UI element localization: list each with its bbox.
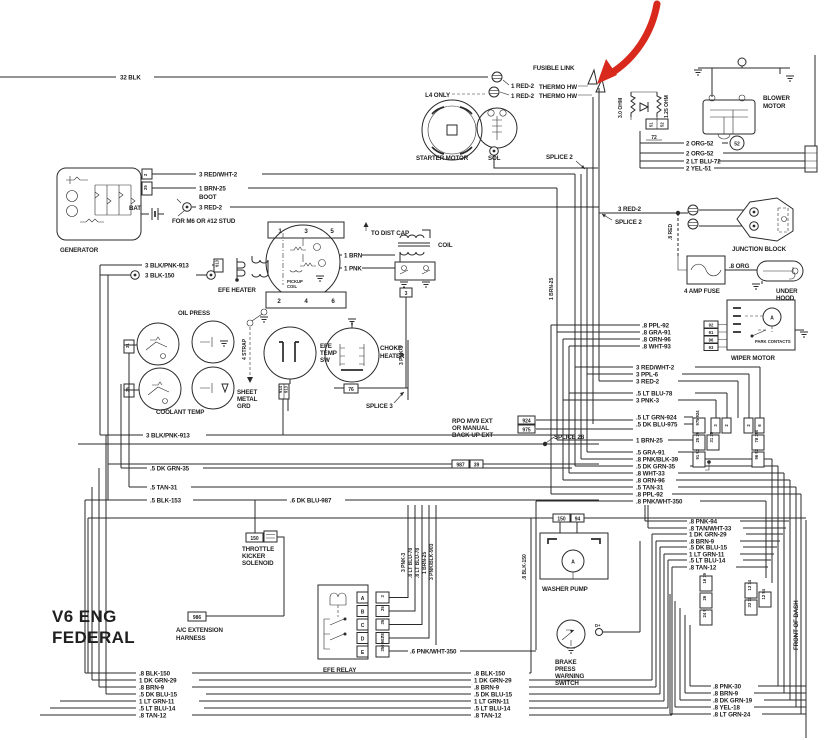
jb-splice2-label: SPLICE 2 bbox=[615, 219, 642, 226]
jb-red2-label: 3 RED-2 bbox=[618, 206, 642, 213]
brake-label-3: WARNING bbox=[555, 673, 584, 680]
washer-conn-150: 150 bbox=[557, 517, 566, 523]
red2-label-a: 1 RED-2 bbox=[511, 83, 535, 90]
blower-conn-51: 51 bbox=[649, 122, 654, 127]
resistor-125ohm-label: 1.25 OHM bbox=[664, 95, 670, 118]
wiper-wire-3: .8 WHT-93 bbox=[642, 344, 671, 351]
blkpnk913-run-label: 3 BLK/PNK-913 bbox=[146, 433, 190, 440]
relay-vwire-0: 3 PNK-3 bbox=[401, 553, 407, 572]
ac-extension-harness: 986 A/C EXTENSION HARNESS bbox=[176, 612, 284, 642]
pnk1-label: 1 PNK bbox=[344, 266, 362, 273]
blower-motor-label-2: MOTOR bbox=[763, 103, 786, 110]
strap-label: 4 STRAP bbox=[242, 338, 248, 360]
bottom-mid-label: .8 TAN-12 bbox=[474, 713, 502, 720]
brake-terminal-label: D+ bbox=[595, 623, 601, 628]
washer-wire-2: 1 DK GRN-29 bbox=[689, 532, 727, 539]
wcluster-cell: 12 94 bbox=[761, 588, 766, 599]
pnk3-vert-label: 3 PNK-3 bbox=[399, 346, 405, 365]
wiper-pin-96: 96 bbox=[709, 338, 714, 343]
park-contacts-label: PARK CONTACTS bbox=[755, 339, 791, 344]
bottom-mid-label: .8 BLK-150 bbox=[474, 671, 506, 678]
brake-label-4: SWITCH bbox=[555, 680, 579, 687]
front-of-dash: FRONT OF DASH bbox=[793, 520, 806, 738]
pickup-coil-label-2: COIL bbox=[287, 284, 297, 289]
wiper-motor-a: A bbox=[770, 316, 774, 322]
efe-heater-label: EFE HEATER bbox=[218, 287, 256, 294]
efe-blk150-label: 3 BLK-150 bbox=[145, 273, 175, 280]
bottom-mid-label: 1 DK GRN-29 bbox=[474, 678, 512, 685]
relay-conn-num: 350 903 bbox=[380, 636, 385, 652]
pnkwht350-label: .6 PNK/WHT-350 bbox=[410, 649, 457, 656]
wire-label: 32 BLK bbox=[120, 75, 141, 82]
bus-row-label: .5 LT GRN-924 bbox=[636, 415, 677, 422]
wcluster-cell: 33 11 bbox=[747, 597, 752, 608]
efe-relay: A B C D E 3 25 35 78 350 903 EFE RELAY 3… bbox=[318, 505, 536, 674]
kicker-conn-150: 150 bbox=[250, 536, 259, 542]
rpo-label-3: BACK-UP EXT bbox=[452, 432, 493, 439]
brn25-vert-label: 1 BRN-25 bbox=[549, 278, 555, 300]
coolant-temp-label: COOLANT TEMP bbox=[156, 409, 204, 416]
gen-red2-label: 3 RED-2 bbox=[199, 205, 223, 212]
bottom-left-label: .5 DK BLU-15 bbox=[139, 692, 178, 699]
conn-975: 975 bbox=[522, 428, 531, 434]
bottom-mid-label: 1 LT GRN-11 bbox=[474, 699, 510, 706]
blk150-vert-label: .8 BLK-150 bbox=[522, 554, 528, 580]
cluster-cell: 96 92 bbox=[754, 448, 759, 459]
wiper-pin-91: 91 bbox=[709, 330, 714, 335]
bus-row-label: 3 RED-2 bbox=[636, 379, 660, 386]
splice2-label-a: SPLICE 2 bbox=[546, 154, 573, 161]
ltblu72-label: 2 LT BLU-72 bbox=[686, 159, 721, 166]
relay-pin-a: A bbox=[361, 596, 365, 602]
kicker-label-2: KICKER bbox=[242, 553, 266, 560]
conn-913: 913 bbox=[284, 385, 289, 393]
gauge-cluster: OIL PRESS COOLANT TEMP 31 35 4 STRAP SHE… bbox=[121, 309, 408, 487]
relay-pin-d: D bbox=[361, 637, 365, 643]
efe-heater: 3 BLK/PNK-913 3 BLK-150 913 EFE HEATER bbox=[100, 256, 268, 500]
red2-label-b: 1 RED-2 bbox=[511, 93, 535, 100]
wire-32-blk: 32 BLK bbox=[0, 75, 488, 82]
bus-row-label: 3 PPL-6 bbox=[636, 372, 659, 379]
fusible-link-label: FUSIBLE LINK bbox=[533, 65, 575, 72]
wiper-pin-93: 93 bbox=[709, 345, 714, 350]
splice28-label: SPLICE 28 bbox=[554, 434, 585, 441]
wcluster-cell: 24 9 bbox=[702, 609, 707, 618]
fuse-label: 4 AMP FUSE bbox=[684, 288, 720, 295]
relay-vwire-1: .8 LT BLU-78 bbox=[408, 548, 414, 578]
bus-row-label: .5 DK GRN-35 bbox=[636, 464, 676, 471]
bulkhead-connector-cluster: 975 924 3 2 2 6 25 39 31 35 78 350 91 93… bbox=[693, 410, 764, 470]
coil-label: COIL bbox=[438, 242, 453, 249]
relay-pin-b: B bbox=[361, 610, 365, 616]
annotation-arrow-head bbox=[597, 59, 617, 84]
dkgrn35-run-label: .5 DK GRN-35 bbox=[150, 466, 190, 473]
org52-label-a: 2 ORG-52 bbox=[686, 141, 714, 148]
brake-label-2: PRESS bbox=[555, 666, 575, 673]
cluster-cell: 91 93 bbox=[695, 448, 700, 459]
relay-vwire-3: 1 BRN-25 bbox=[422, 552, 428, 574]
circle-52-label: 52 bbox=[734, 142, 740, 148]
bus-row-label: .8 PNK/BLK-39 bbox=[636, 457, 679, 464]
ac-harness-label-2: HARNESS bbox=[176, 635, 206, 642]
conn-914: 914 bbox=[278, 385, 283, 393]
bottom-right-label: .8 BRN-9 bbox=[713, 691, 739, 698]
bottom-left-label: 1 DK GRN-29 bbox=[139, 678, 177, 685]
org8-label: .8 ORG bbox=[729, 263, 750, 270]
relay-conn-num: 35 bbox=[380, 619, 385, 624]
lamp-label-1: UNDER bbox=[776, 288, 798, 295]
gen-brn25-label: 1 BRN-25 bbox=[199, 186, 226, 193]
fusible-link-assembly: FUSIBLE LINK THERMO HW THERMO HW bbox=[533, 65, 605, 381]
junction-block-label: JUNCTION BLOCK bbox=[732, 246, 787, 253]
conn-987: 987 bbox=[456, 463, 465, 469]
bottom-mid-label: .5 LT BLU-14 bbox=[474, 706, 511, 713]
sheet-grd-label-1: SHEET bbox=[237, 389, 257, 396]
brake-label-1: BRAKE bbox=[555, 659, 577, 666]
relay-vwire-4: 3 PNK/BLK-903 bbox=[429, 543, 435, 580]
gen-conn-25: 25 bbox=[143, 185, 148, 190]
bottom-left-label: .8 BRN-9 bbox=[139, 685, 165, 692]
to-dist-cap-label: TO DIST CAP bbox=[371, 230, 409, 237]
bus-row-label: .5 TAN-31 bbox=[636, 485, 664, 492]
washer-wire-4: .5 DK BLU-15 bbox=[689, 545, 728, 552]
wiper-motor-label: WIPER MOTOR bbox=[731, 355, 775, 362]
bottom-right-wire-list: .8 PNK-30 .8 BRN-9 .8 DK GRN-19 .8 YEL-1… bbox=[670, 594, 806, 719]
yel51-label: 2 YEL-51 bbox=[686, 166, 712, 173]
washer-motor-a: A bbox=[571, 560, 575, 566]
gen-redwht2-label: 3 RED/WHT-2 bbox=[199, 172, 238, 179]
bottom-mid-label: .5 DK BLU-15 bbox=[474, 692, 513, 699]
bat-label: BAT bbox=[129, 205, 141, 212]
conn-924: 924 bbox=[522, 419, 531, 425]
bus-row-label: .8 ORN-96 bbox=[636, 478, 665, 485]
org52-label-b: 2 ORG-52 bbox=[686, 151, 714, 158]
washer-pump-label: WASHER PUMP bbox=[542, 586, 588, 593]
sheet-grd-label-2: METAL bbox=[237, 396, 258, 403]
rpo-label-2: OR MANUAL bbox=[452, 425, 489, 432]
bus-row-label: .8 PNK/WHT-350 bbox=[636, 499, 683, 506]
bus-row-label: 3 PNK-3 bbox=[636, 398, 660, 405]
blower-conn-52: 52 bbox=[660, 122, 665, 127]
annotation-arrow bbox=[597, 4, 657, 84]
diagram-title: V6 ENG FEDERAL bbox=[52, 607, 135, 647]
tan31-run-label: .5 TAN-31 bbox=[150, 485, 178, 492]
bus-row-label: .5 LT BLU-78 bbox=[636, 391, 673, 398]
distributor-assembly: 1 3 5 PICKUP COIL 2 4 6 TO DIST CAP COIL… bbox=[266, 188, 557, 440]
conn-39: 39 bbox=[474, 463, 480, 469]
washer-wire-7: .8 TAN-12 bbox=[689, 565, 717, 572]
relay-vwire-2: .8 LT BLU-78 bbox=[415, 548, 421, 578]
washer-conn-94: 94 bbox=[575, 517, 581, 523]
conn-76: 76 bbox=[348, 387, 354, 393]
wiper-wire-1: .8 GRA-91 bbox=[642, 330, 671, 337]
title-line-2: FEDERAL bbox=[52, 628, 135, 647]
bottom-right-label: .8 LT GRN-24 bbox=[713, 712, 751, 719]
ac-harness-label-1: A/C EXTENSION bbox=[176, 627, 223, 634]
blower-motor-label-1: BLOWER bbox=[763, 95, 791, 102]
ac-conn-986: 986 bbox=[193, 615, 202, 621]
blower-motor: BLOWER MOTOR bbox=[694, 58, 794, 139]
bus-row-label: .8 PPL-92 bbox=[636, 492, 664, 499]
bottom-left-label: .8 TAN-12 bbox=[139, 713, 167, 720]
bottom-mid-label: .8 BRN-9 bbox=[474, 685, 500, 692]
kicker-label-1: THROTTLE bbox=[242, 546, 274, 553]
cluster-cell: 25 39 bbox=[695, 431, 700, 442]
wiper-pin-92: 92 bbox=[709, 323, 714, 328]
front-of-dash-label: FRONT OF DASH bbox=[793, 600, 800, 650]
bottom-left-label: .8 BLK-150 bbox=[139, 671, 171, 678]
washer-wire-6: .5 LT BLU-14 bbox=[689, 558, 726, 565]
junction-block-assembly: 3 RED-2 SPLICE 2 JUNCTION BLOCK .8 RED 4… bbox=[599, 198, 803, 309]
dash-connector-clusters: 16 19 26 24 9 13 14 33 11 12 94 bbox=[700, 572, 771, 625]
bus-row-label: 3 RED/WHT-2 bbox=[636, 365, 675, 372]
starter-motor-label: STARTER MOTOR bbox=[416, 155, 469, 162]
title-line-1: V6 ENG bbox=[52, 607, 117, 626]
generator-label: GENERATOR bbox=[60, 247, 99, 254]
relay-pin-c: C bbox=[361, 623, 365, 629]
bus-row-label: .5 DK BLU-975 bbox=[636, 422, 678, 429]
oil-press-label: OIL PRESS bbox=[178, 310, 210, 317]
wiper-motor-assembly: .8 PPL-92 .8 GRA-91 .8 ORN-96 .8 WHT-93 … bbox=[551, 300, 808, 362]
red8-label: .8 RED bbox=[668, 223, 674, 240]
relay-conn-num: 25 bbox=[380, 606, 385, 611]
blower-resistor-assembly: 3.0 OHM 1.25 OHM 51 52 72 bbox=[618, 92, 670, 141]
stud-note-label: FOR M6 OR #12 STUD bbox=[172, 218, 236, 225]
blk153-run-label: .5 BLK-153 bbox=[150, 498, 182, 505]
efe-blkpnk913-label: 3 BLK/PNK-913 bbox=[145, 263, 189, 270]
cluster-cell: 975 924 bbox=[695, 410, 700, 426]
washer-wire-0: .8 PNK-94 bbox=[689, 519, 718, 526]
wcluster-cell: 26 bbox=[702, 595, 707, 600]
wiper-wire-2: .8 ORN-96 bbox=[642, 337, 671, 344]
bottom-right-label: .8 PNK-30 bbox=[713, 684, 742, 691]
wcluster-cell: 16 19 bbox=[702, 572, 707, 583]
resistor-3ohm-label: 3.0 OHM bbox=[618, 98, 624, 118]
efe-sw-label-2: TEMP bbox=[320, 350, 337, 357]
cluster-cell: 78 350 bbox=[754, 429, 759, 442]
bus-row-label: .8 WHT-33 bbox=[636, 471, 665, 478]
rpo-label-1: RPO MV9 EXT bbox=[452, 418, 493, 425]
dkblu987-run-label: .6 DK BLU-987 bbox=[290, 498, 332, 505]
thermo-label-a: THERMO HW bbox=[539, 84, 577, 91]
wcluster-cell: 13 14 bbox=[747, 579, 752, 590]
generator: GENERATOR 2 25 BAT 3 RED/WHT-2 1 BRN-25 … bbox=[57, 168, 599, 254]
annotation-arrow-stroke bbox=[610, 4, 657, 74]
brn1-label: 1 BRN bbox=[344, 253, 363, 260]
bottom-right-label: .8 DK GRN-19 bbox=[713, 698, 753, 705]
wiring-diagram-page: 32 BLK L4 ONLY 1 RED-2 1 RED-2 STARTER M… bbox=[0, 0, 840, 740]
l4-only-label: L4 ONLY bbox=[425, 92, 451, 99]
bottom-left-label: .5 LT BLU-14 bbox=[139, 706, 176, 713]
bottom-left-label: 1 LT GRN-11 bbox=[139, 699, 175, 706]
coil-conn-3: 3 bbox=[405, 291, 408, 297]
wiring-diagram: 32 BLK L4 ONLY 1 RED-2 1 RED-2 STARTER M… bbox=[0, 0, 840, 740]
bottom-right-label: .8 YEL-18 bbox=[713, 705, 741, 712]
wiper-wire-0: .8 PPL-92 bbox=[642, 323, 670, 330]
kicker-label-3: SOLENOID bbox=[242, 560, 274, 567]
efe-conn-913: 913 bbox=[215, 259, 220, 267]
cluster-cell: 31 35 bbox=[709, 431, 714, 442]
boot-label: BOOT bbox=[199, 194, 217, 201]
thermo-label-b: THERMO HW bbox=[539, 93, 577, 100]
bus-row-label: 1 BRN-25 bbox=[636, 438, 663, 445]
bus-row-label: .5 GRA-91 bbox=[636, 450, 665, 457]
splice3-label: SPLICE 3 bbox=[366, 403, 393, 410]
rpo-backup-note: RPO MV9 EXT OR MANUAL BACK-UP EXT 924 97… bbox=[78, 416, 599, 469]
sheet-grd-label-3: GRD bbox=[237, 403, 251, 410]
